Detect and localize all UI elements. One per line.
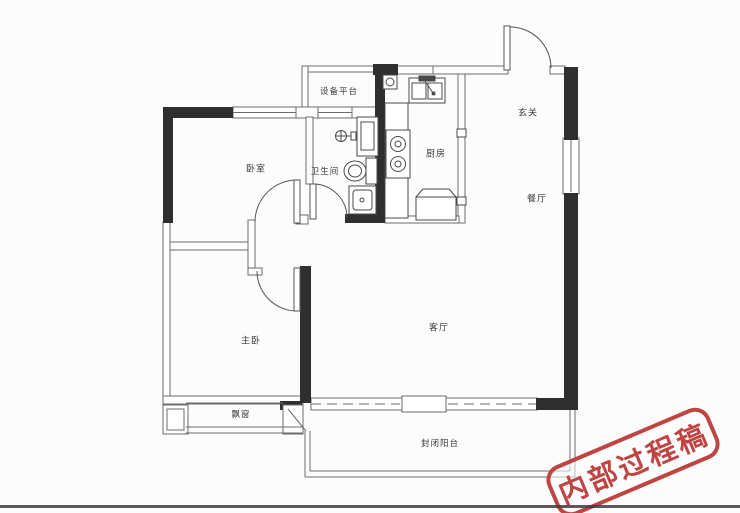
wall-segment bbox=[550, 66, 565, 74]
room-label-bathroom: 卫生间 bbox=[311, 165, 340, 177]
wall-segment bbox=[248, 220, 255, 275]
door-swing-arc bbox=[255, 180, 297, 222]
door-leaf bbox=[294, 180, 300, 223]
door-leaf bbox=[310, 184, 316, 219]
kitchen-fixtures bbox=[383, 75, 466, 220]
room-label-equipment-platform: 设备平台 bbox=[320, 85, 358, 97]
photo-edge-line bbox=[0, 505, 740, 508]
room-label-bedroom: 卧室 bbox=[246, 162, 266, 175]
bay-pier bbox=[283, 405, 303, 434]
entry-door-icon bbox=[504, 26, 551, 70]
door-leaf bbox=[504, 26, 510, 70]
room-label-entry: 玄关 bbox=[518, 106, 538, 119]
room-label-balcony: 封闭阳台 bbox=[421, 437, 459, 449]
door-swing-arc bbox=[510, 27, 551, 68]
wall-segment bbox=[248, 268, 262, 275]
gas-meter-icon bbox=[383, 75, 397, 89]
wall-segment bbox=[163, 222, 170, 403]
wall-segment bbox=[302, 66, 376, 72]
bathroom-door-icon bbox=[310, 184, 347, 219]
room-label-dining: 餐厅 bbox=[527, 192, 547, 205]
door-leaf bbox=[294, 268, 300, 311]
door-swing-arc bbox=[313, 184, 347, 218]
room-label-master-bedroom: 主卧 bbox=[241, 334, 261, 347]
washbasin-icon bbox=[357, 117, 378, 156]
master-bedroom-door-icon bbox=[257, 268, 300, 311]
door-swing-arc bbox=[257, 271, 297, 311]
shower-tray-icon bbox=[349, 186, 376, 214]
wall-segment bbox=[564, 67, 578, 140]
wall-segment bbox=[345, 214, 385, 223]
bedroom-door-icon bbox=[255, 180, 300, 223]
wall-segment bbox=[163, 107, 233, 118]
wall-segment bbox=[536, 398, 578, 410]
wall-segment bbox=[163, 107, 173, 223]
wall-segment bbox=[300, 266, 311, 403]
bay-pier-inner bbox=[167, 409, 184, 430]
balcony-door-opening bbox=[402, 396, 446, 412]
wall-segment bbox=[564, 193, 578, 400]
toilet-icon bbox=[344, 158, 377, 184]
wall-segment bbox=[302, 66, 308, 108]
wall-segment bbox=[163, 242, 249, 250]
fridge-icon bbox=[416, 189, 456, 220]
faucet-icon bbox=[336, 131, 358, 142]
stove-icon bbox=[386, 130, 410, 178]
room-label-bay-window: 飘窗 bbox=[231, 408, 250, 420]
kitchen-sink-icon bbox=[409, 76, 445, 103]
wall-segment bbox=[397, 66, 508, 74]
room-label-living-room: 客厅 bbox=[429, 321, 449, 334]
floor-plan: 设备平台 卧室 卫生间 厨房 玄关 餐厅 主卧 客厅 飘窗 封闭阳台 内部过程稿 bbox=[0, 0, 740, 513]
room-label-kitchen: 厨房 bbox=[426, 147, 446, 160]
